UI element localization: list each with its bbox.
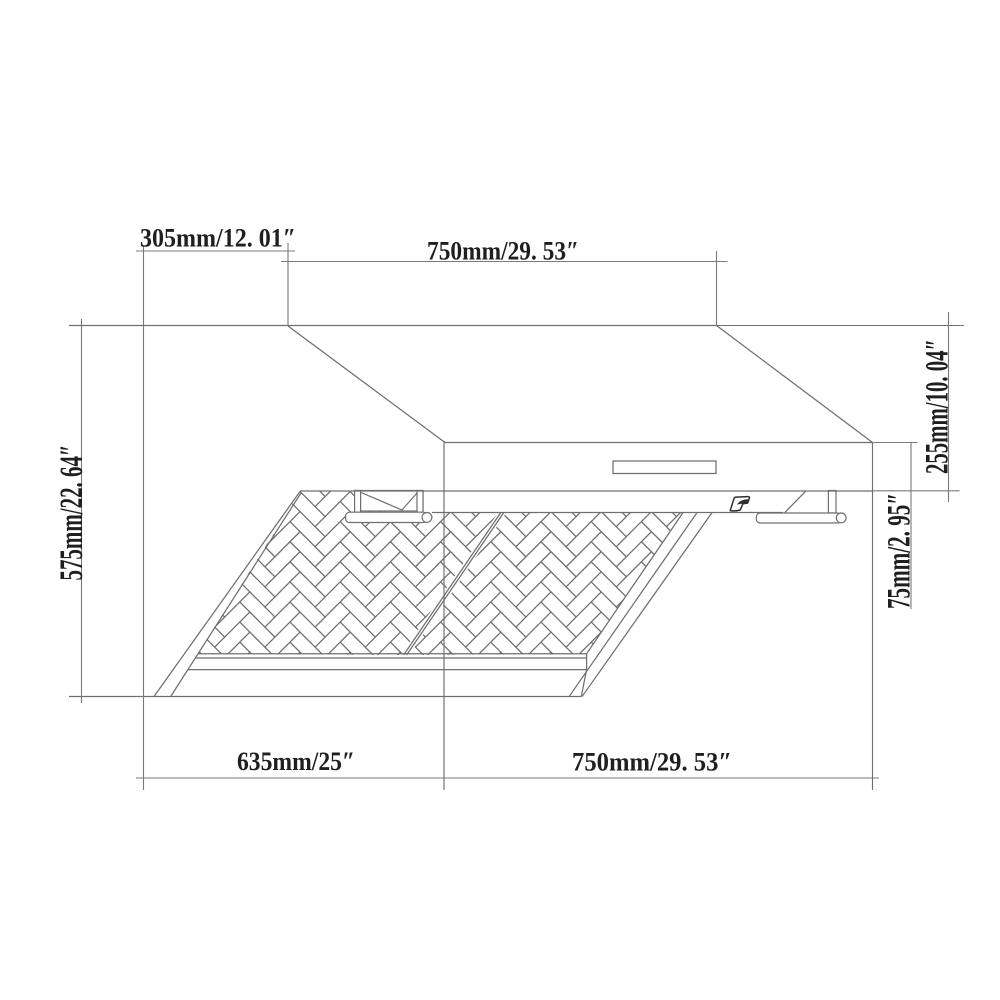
- svg-text:750mm/29. 53″: 750mm/29. 53″: [572, 748, 732, 777]
- svg-text:75mm/2. 95″: 75mm/2. 95″: [882, 493, 918, 609]
- svg-text:750mm/29. 53″: 750mm/29. 53″: [427, 236, 579, 265]
- svg-text:305mm/12. 01″: 305mm/12. 01″: [140, 223, 296, 252]
- svg-text:635mm/25″: 635mm/25″: [237, 747, 355, 776]
- svg-text:575mm/22. 64″: 575mm/22. 64″: [54, 445, 90, 581]
- svg-text:255mm/10. 04″: 255mm/10. 04″: [920, 339, 956, 474]
